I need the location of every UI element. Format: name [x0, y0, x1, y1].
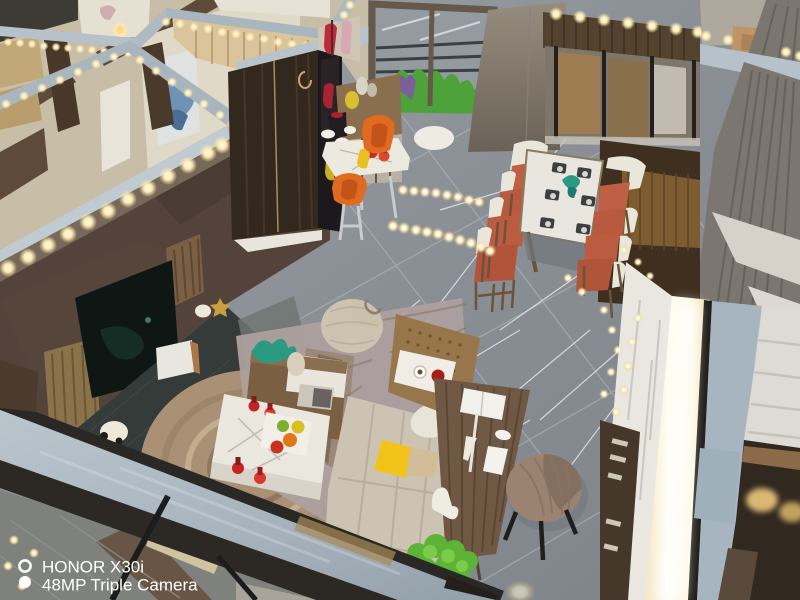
svg-text:48MP Triple Camera: 48MP Triple Camera [42, 576, 198, 595]
svg-text:HONOR X30i: HONOR X30i [42, 558, 144, 577]
